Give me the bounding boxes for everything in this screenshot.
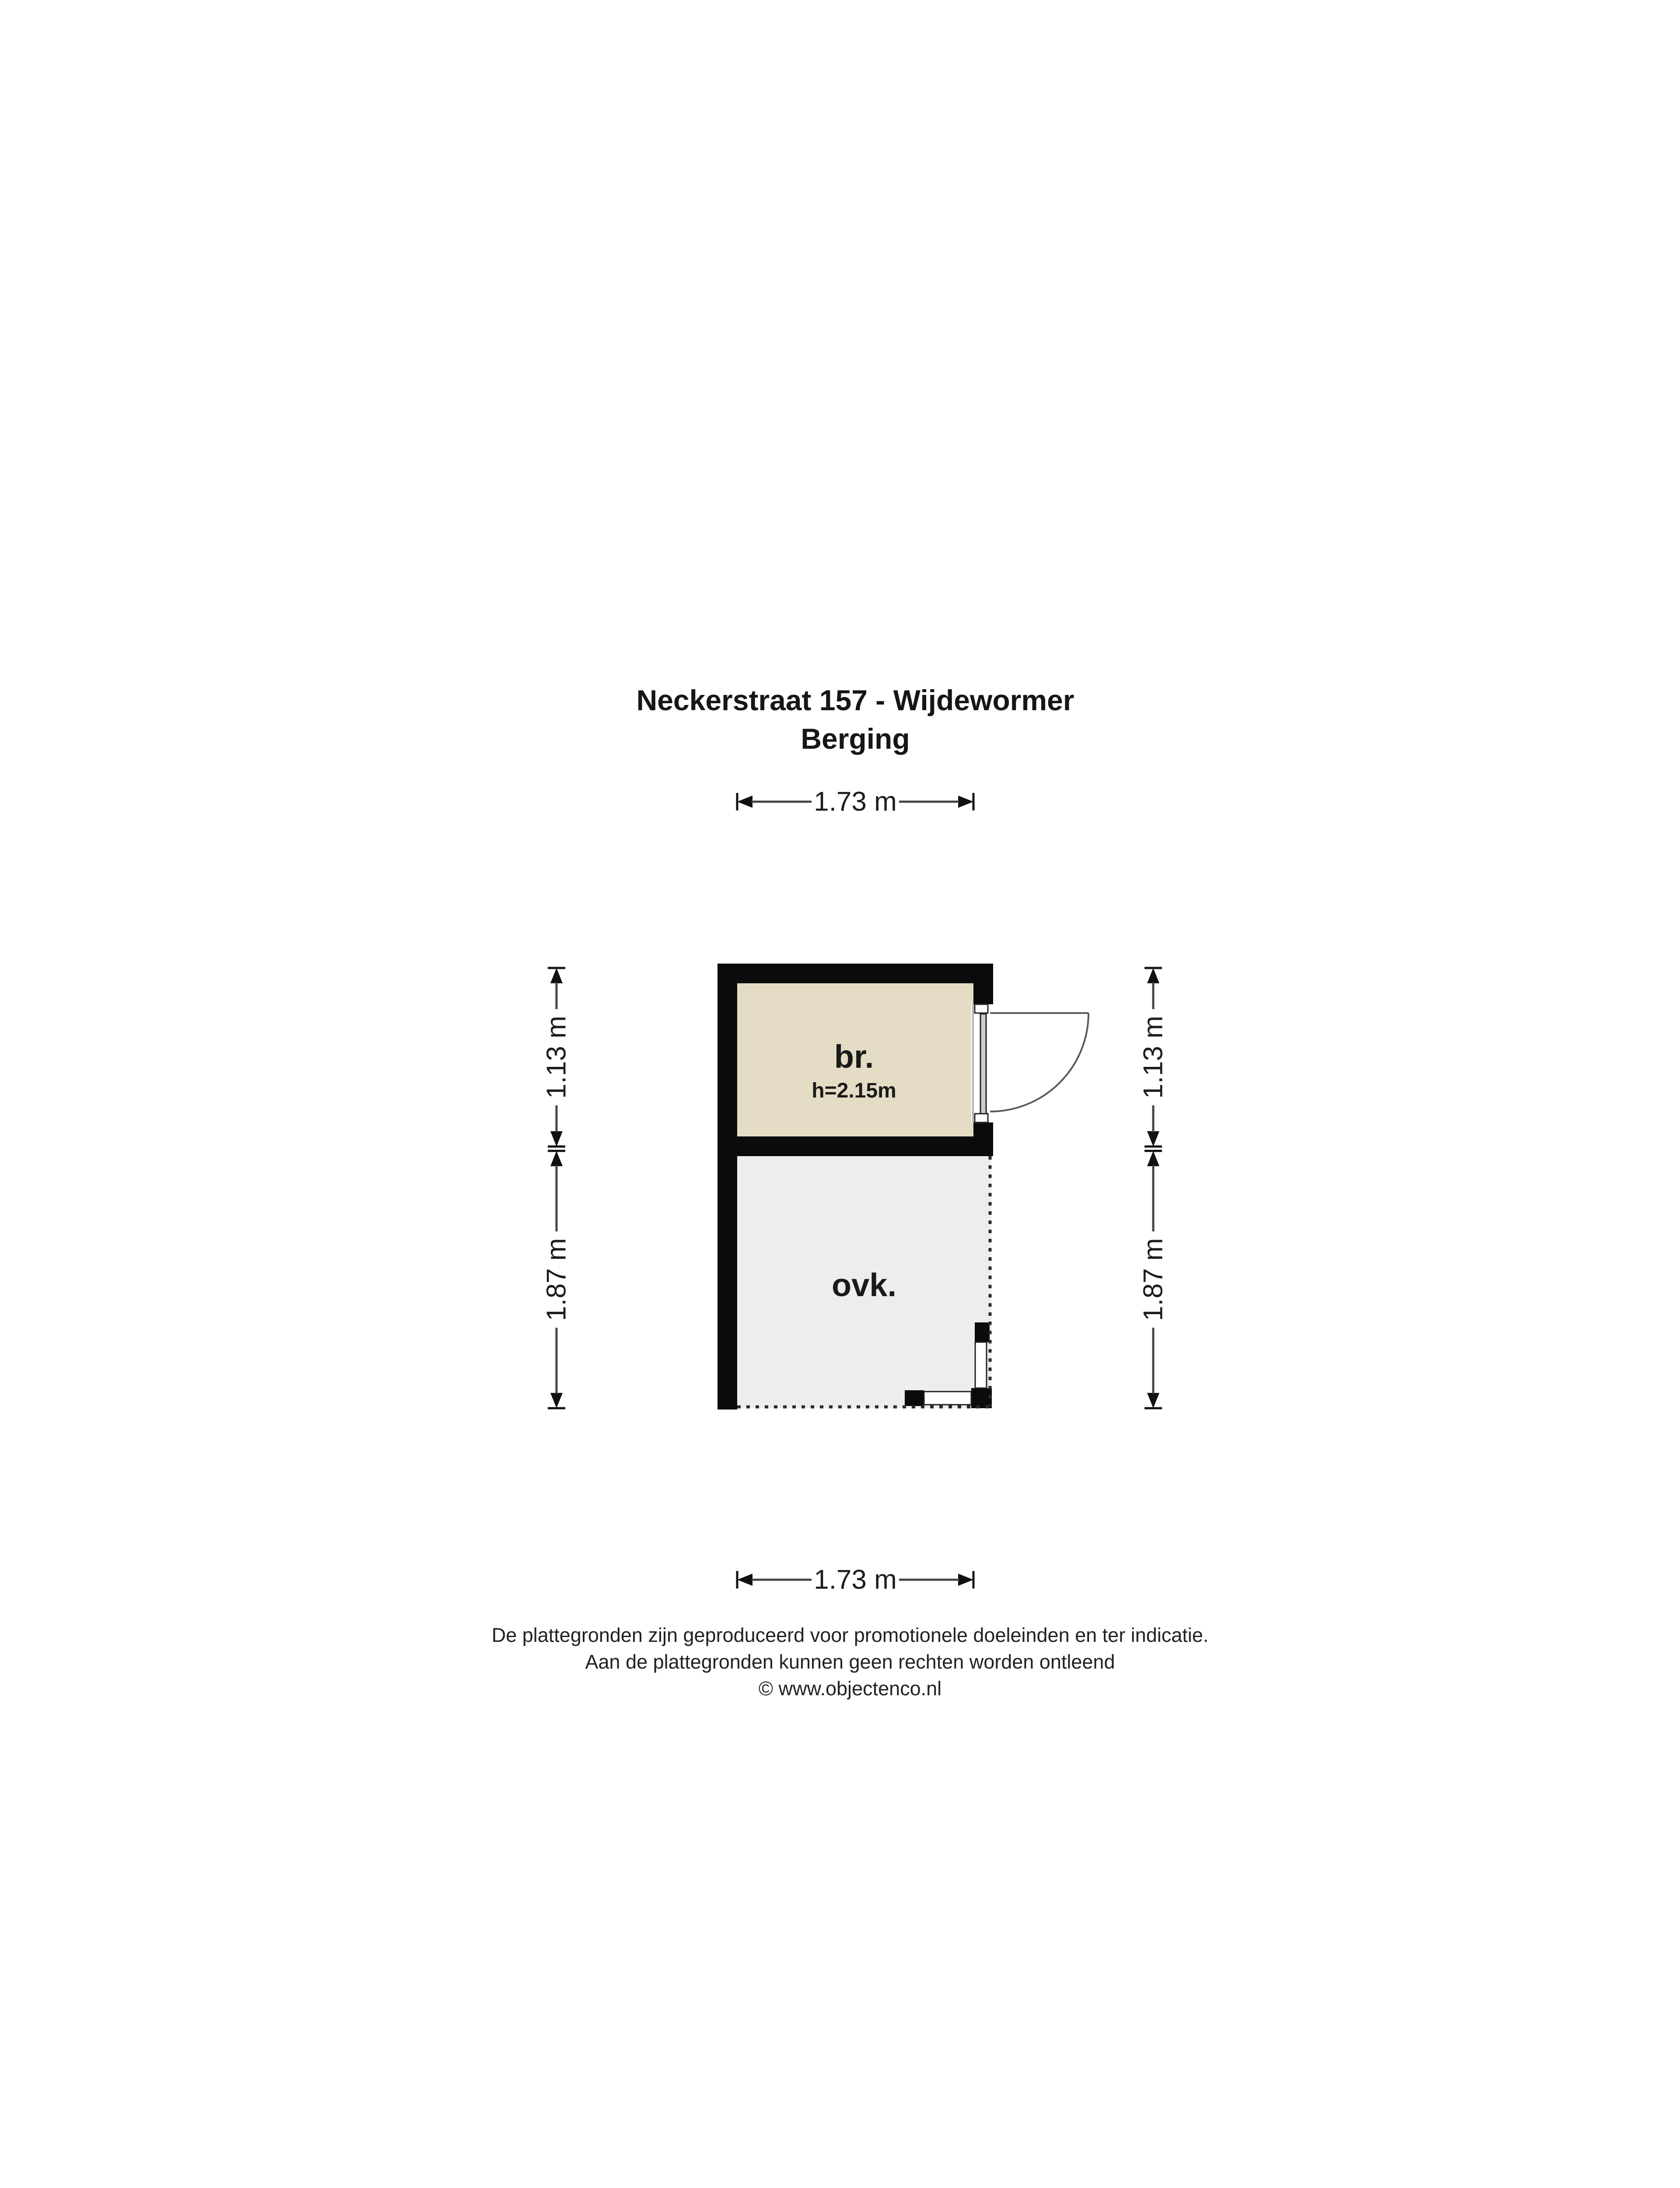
dimension-right-upper-label: 1.13 m [1138, 1016, 1169, 1099]
room-ovk-label: ovk. [832, 1267, 896, 1303]
arrow-up-icon [1147, 1151, 1159, 1166]
arrow-down-icon [550, 1393, 563, 1408]
door-swing-arc [990, 1013, 1088, 1112]
window-post-left [905, 1390, 924, 1406]
arrow-up-icon [1147, 968, 1159, 983]
dimension-left-lower: 1.87 m [542, 1151, 572, 1408]
dimension-bottom: 1.73 m [737, 1565, 973, 1595]
wall-divider [717, 1136, 993, 1156]
wall-left [717, 964, 737, 1410]
dimension-left-upper: 1.13 m [542, 968, 572, 1147]
dimension-right-lower: 1.87 m [1138, 1151, 1169, 1408]
dimension-left-lower-label: 1.87 m [542, 1238, 572, 1321]
disclaimer: De plattegronden zijn geproduceerd voor … [492, 1622, 1209, 1702]
floorplan-page: Neckerstraat 157 - Wijdewormer Berging [0, 0, 1680, 2188]
arrow-left-icon [737, 1574, 752, 1586]
door-jamb-top [975, 1004, 988, 1013]
dimension-left-upper-label: 1.13 m [542, 1016, 572, 1099]
disclaimer-line1: De plattegronden zijn geproduceerd voor … [492, 1622, 1209, 1648]
disclaimer-line3: © www.objectenco.nl [492, 1675, 1209, 1702]
arrow-right-icon [958, 796, 973, 808]
wall-top [717, 964, 993, 983]
window-pane-horizontal [924, 1392, 971, 1405]
floorplan-drawing: 1.73 m 1.73 m 1.13 m [0, 0, 1680, 2188]
dimension-right-upper: 1.13 m [1138, 968, 1169, 1147]
dimension-top: 1.73 m [737, 787, 973, 817]
arrow-down-icon [1147, 1131, 1159, 1147]
wall-right-above-door [973, 964, 993, 1004]
door-jamb-bottom [975, 1114, 988, 1122]
arrow-up-icon [550, 968, 563, 983]
door [971, 1004, 1088, 1122]
arrow-down-icon [550, 1131, 563, 1147]
arrow-up-icon [550, 1151, 563, 1166]
arrow-down-icon [1147, 1393, 1159, 1408]
disclaimer-line2: Aan de plattegronden kunnen geen rechten… [492, 1648, 1209, 1675]
window-pane-vertical [975, 1342, 987, 1388]
dimension-bottom-label: 1.73 m [814, 1565, 897, 1595]
door-leaf-closed [980, 1014, 986, 1114]
arrow-right-icon [958, 1574, 973, 1586]
wall-right-below-door [973, 1122, 993, 1156]
dimension-top-label: 1.73 m [814, 787, 897, 817]
arrow-left-icon [737, 796, 752, 808]
dimension-right-lower-label: 1.87 m [1138, 1238, 1169, 1321]
window-post-top [975, 1322, 990, 1342]
room-br-label: br. [834, 1038, 874, 1075]
room-br-height-label: h=2.15m [812, 1079, 896, 1102]
